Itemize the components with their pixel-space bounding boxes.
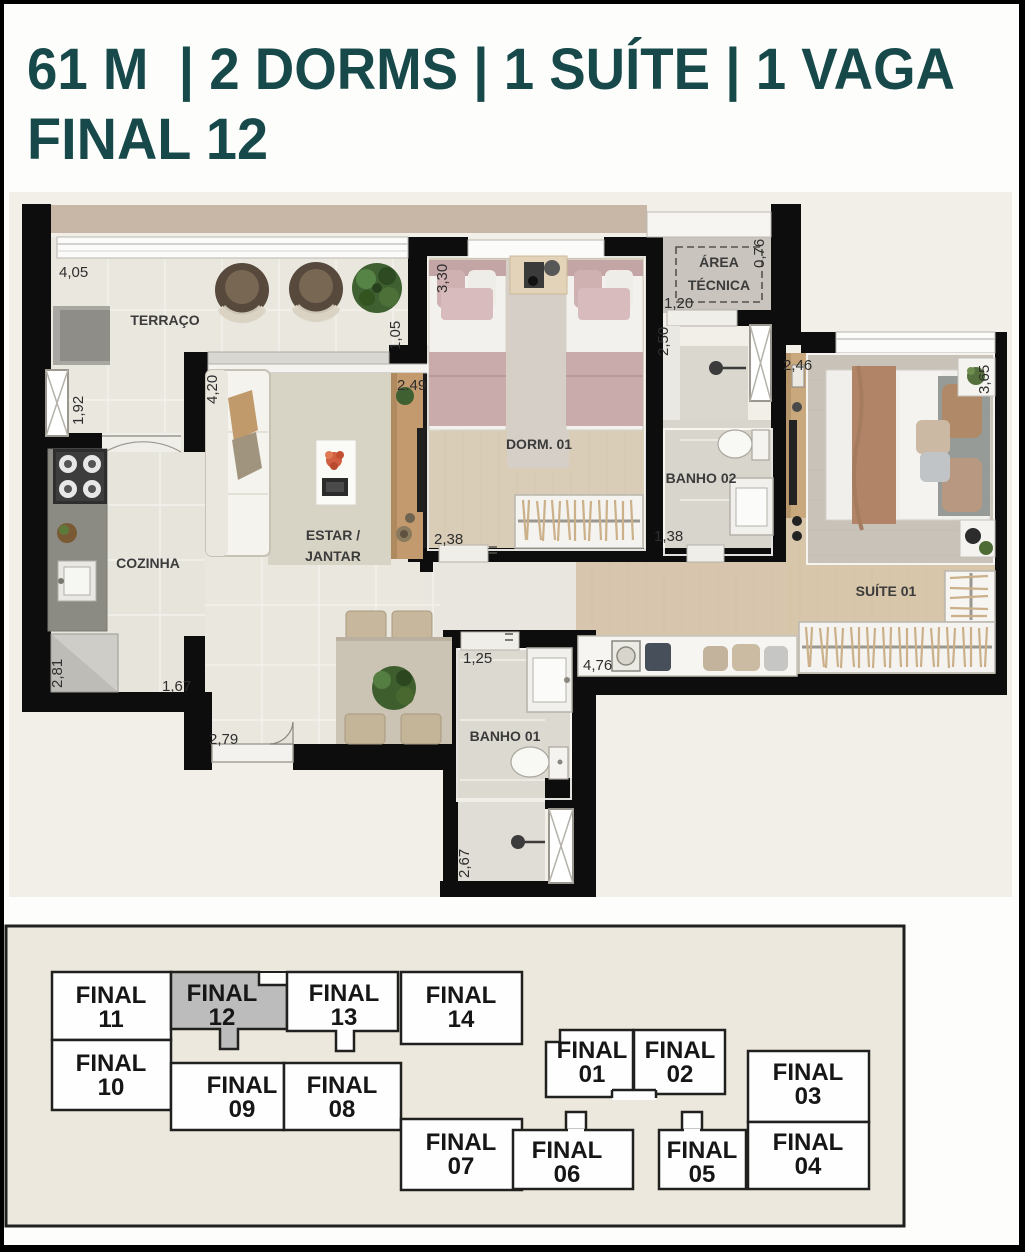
svg-text:FINAL: FINAL <box>773 1059 844 1086</box>
svg-text:FINAL: FINAL <box>76 982 147 1009</box>
svg-text:4,76: 4,76 <box>583 657 612 674</box>
svg-text:1,92: 1,92 <box>70 396 87 425</box>
svg-text:FINAL: FINAL <box>76 1050 147 1077</box>
svg-text:FINAL: FINAL <box>645 1037 716 1064</box>
svg-text:BANHO 02: BANHO 02 <box>666 470 737 486</box>
svg-text:DORM. 01: DORM. 01 <box>506 436 572 452</box>
svg-text:ESTAR /: ESTAR / <box>306 527 360 543</box>
svg-text:02: 02 <box>667 1061 694 1088</box>
svg-text:SUÍTE 01: SUÍTE 01 <box>856 583 917 599</box>
svg-text:TERRAÇO: TERRAÇO <box>130 312 199 328</box>
svg-text:0,76: 0,76 <box>751 239 768 268</box>
svg-text:2,81: 2,81 <box>49 659 66 688</box>
svg-text:2,46: 2,46 <box>783 357 812 374</box>
svg-text:FINAL: FINAL <box>207 1072 278 1099</box>
svg-text:TÉCNICA: TÉCNICA <box>688 277 750 293</box>
svg-text:05: 05 <box>689 1161 716 1188</box>
svg-text:FINAL: FINAL <box>307 1072 378 1099</box>
svg-text:COZINHA: COZINHA <box>116 555 180 571</box>
svg-text:4,05: 4,05 <box>59 264 88 281</box>
svg-text:FINAL: FINAL <box>667 1137 738 1164</box>
svg-text:JANTAR: JANTAR <box>305 548 361 564</box>
svg-text:1,38: 1,38 <box>654 528 683 545</box>
svg-text:08: 08 <box>329 1096 356 1123</box>
svg-text:2,67: 2,67 <box>456 849 473 878</box>
svg-text:FINAL: FINAL <box>773 1129 844 1156</box>
svg-text:1,25: 1,25 <box>463 650 492 667</box>
svg-text:3,30: 3,30 <box>434 264 451 293</box>
svg-text:07: 07 <box>448 1153 475 1180</box>
svg-text:12: 12 <box>209 1004 236 1031</box>
svg-text:01: 01 <box>579 1061 606 1088</box>
svg-text:BANHO 01: BANHO 01 <box>470 728 541 744</box>
svg-text:03: 03 <box>795 1083 822 1110</box>
svg-text:FINAL 12: FINAL 12 <box>27 107 268 172</box>
svg-text:13: 13 <box>331 1004 358 1031</box>
svg-text:10: 10 <box>98 1074 125 1101</box>
svg-text:FINAL: FINAL <box>187 980 258 1007</box>
svg-text:14: 14 <box>448 1006 475 1033</box>
svg-text:FINAL: FINAL <box>309 980 380 1007</box>
svg-text:FINAL: FINAL <box>426 1129 497 1156</box>
svg-text:FINAL: FINAL <box>532 1137 603 1164</box>
svg-text:2.49: 2.49 <box>397 377 426 394</box>
svg-text:4,20: 4,20 <box>204 375 221 404</box>
svg-text:ÁREA: ÁREA <box>699 254 739 270</box>
svg-text:04: 04 <box>795 1153 822 1180</box>
svg-text:1,05: 1,05 <box>387 321 404 350</box>
svg-text:2,79: 2,79 <box>209 731 238 748</box>
svg-text:3,65: 3,65 <box>976 365 993 394</box>
svg-text:2,38: 2,38 <box>434 531 463 548</box>
svg-text:FINAL: FINAL <box>557 1037 628 1064</box>
svg-text:11: 11 <box>98 1006 123 1033</box>
svg-text:09: 09 <box>229 1096 256 1123</box>
svg-text:06: 06 <box>554 1161 581 1188</box>
svg-text:1,67: 1,67 <box>162 678 191 695</box>
svg-text:61 M | 2 DORMS | 1 SUÍTE | 1: 61 M | 2 DORMS | 1 SUÍTE | 1 VAGA <box>27 37 955 102</box>
svg-text:1,20: 1,20 <box>664 295 693 312</box>
svg-text:2,50: 2,50 <box>655 327 672 356</box>
svg-text:FINAL: FINAL <box>426 982 497 1009</box>
